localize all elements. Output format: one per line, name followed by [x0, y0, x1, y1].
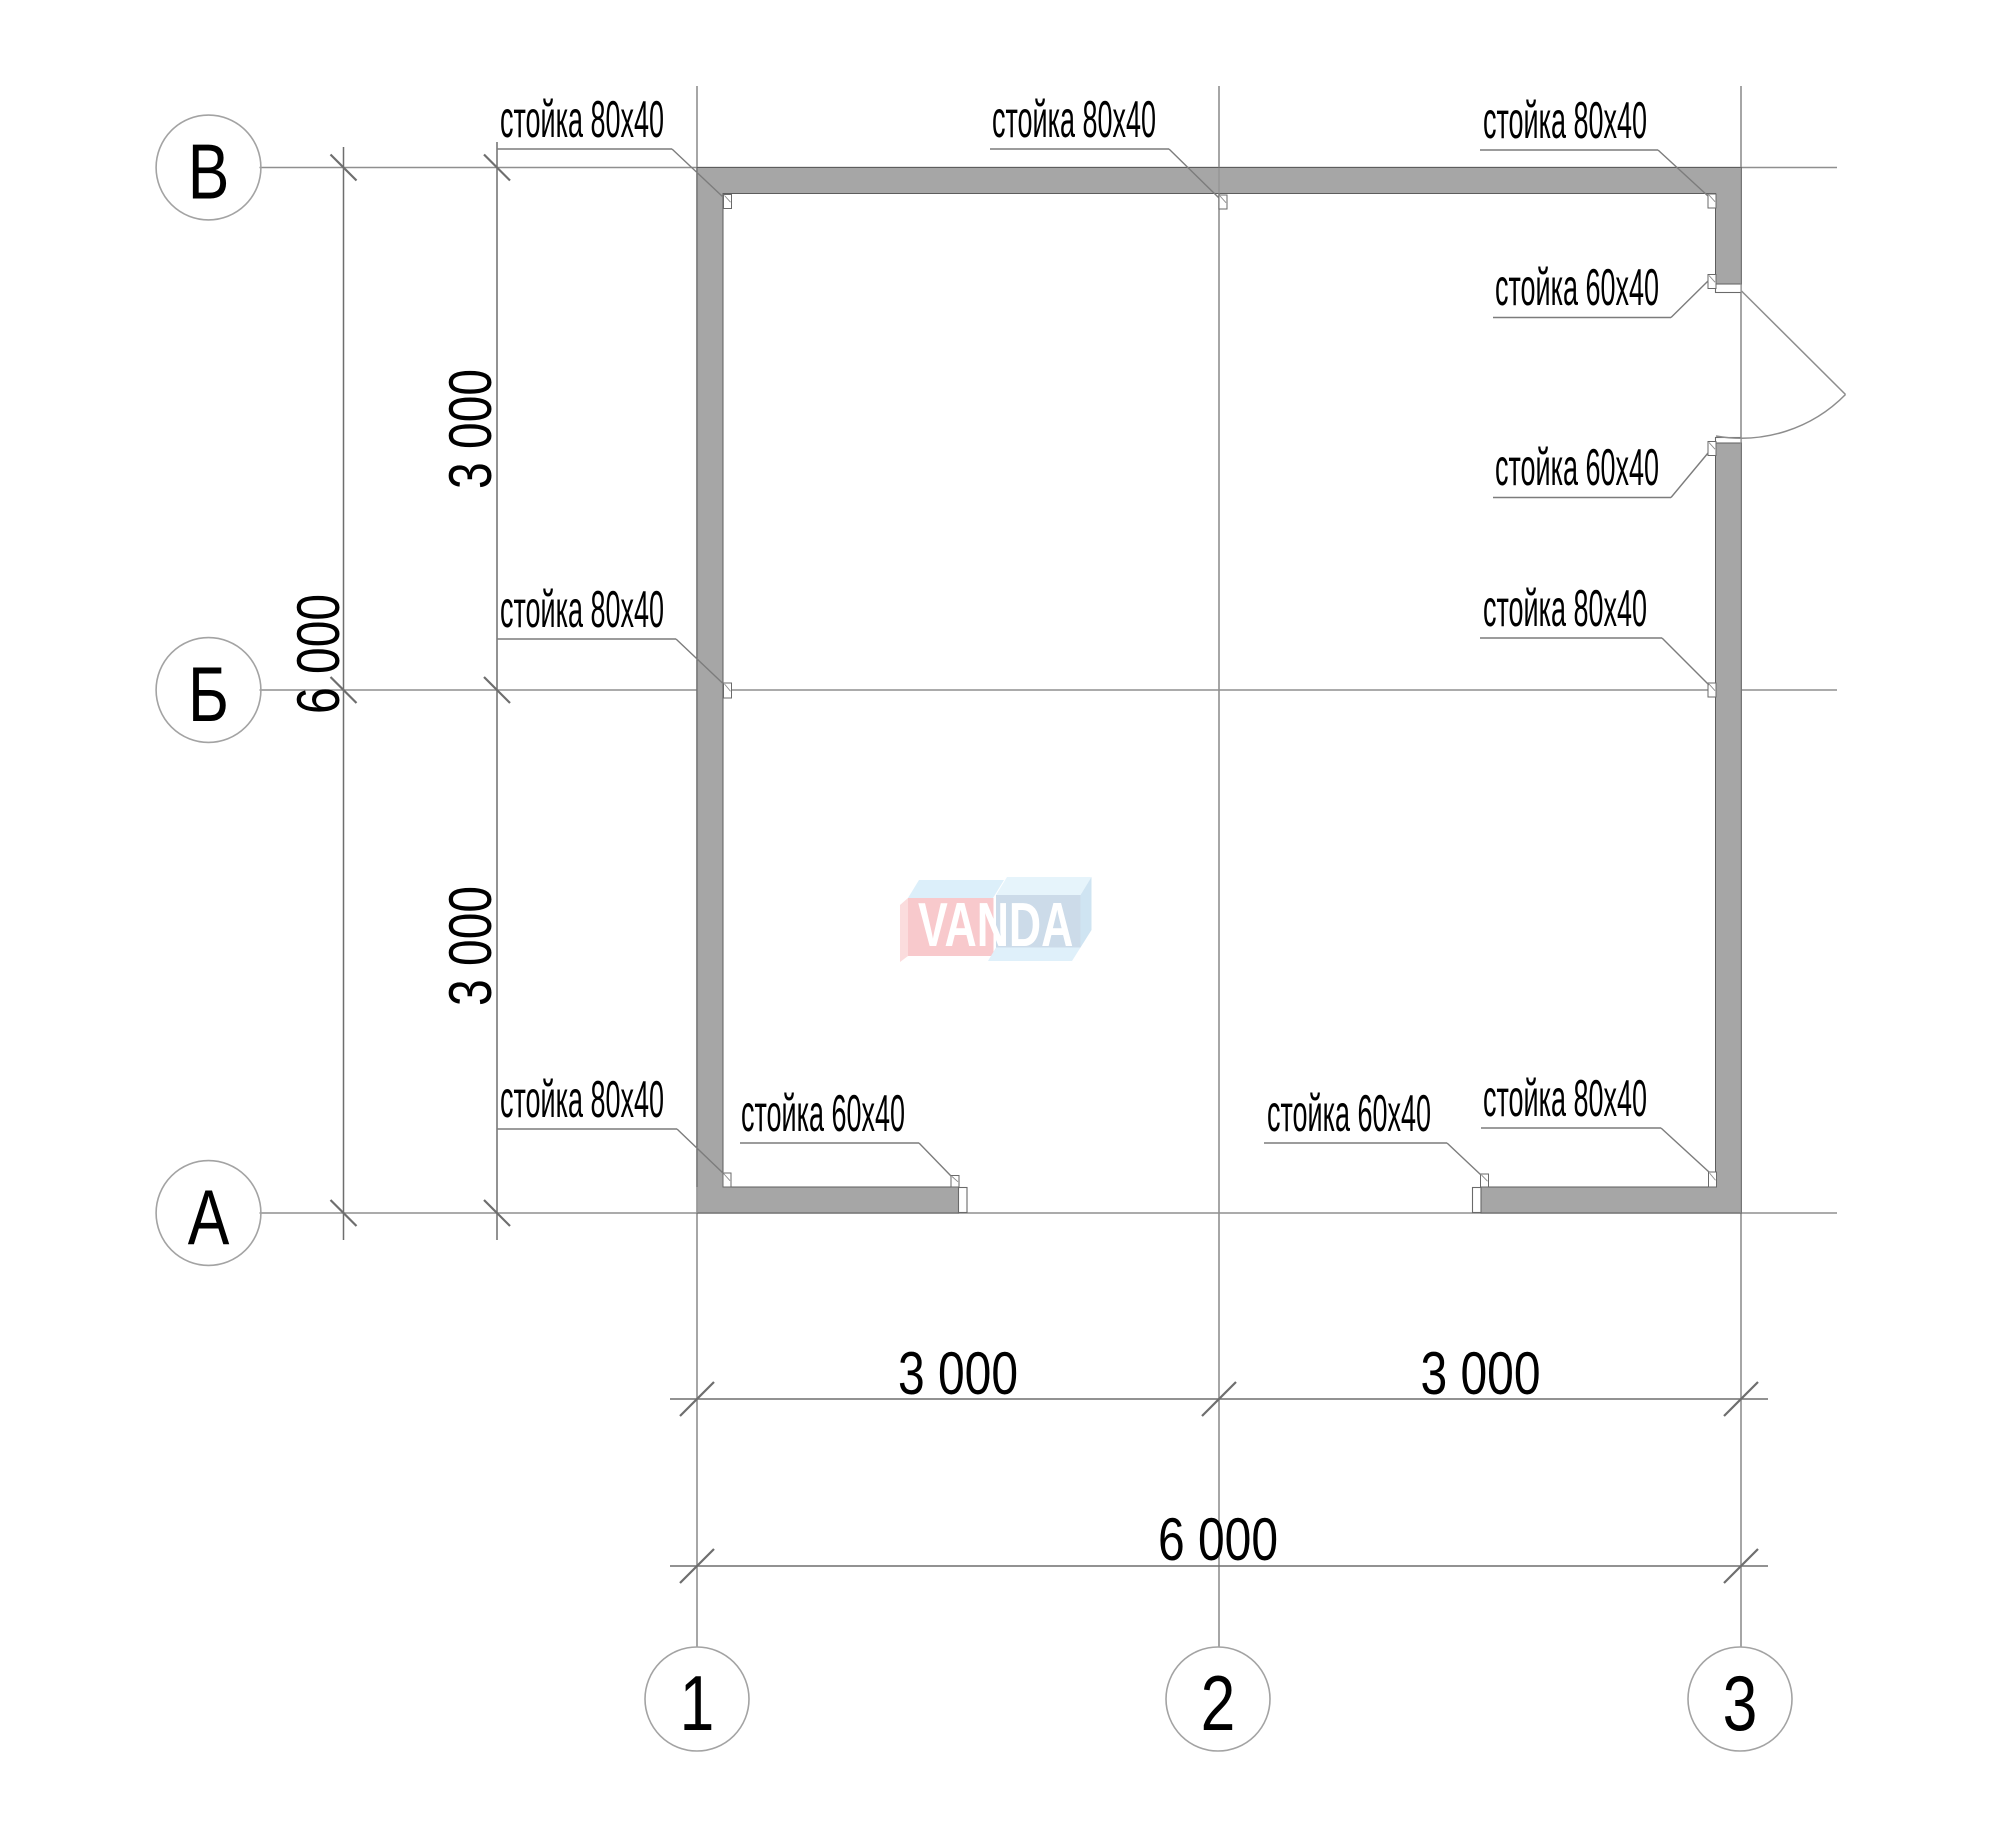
svg-text:стойка 80x40: стойка 80x40: [500, 1071, 664, 1129]
svg-text:стойка 80x40: стойка 80x40: [1483, 580, 1647, 638]
svg-text:6 000: 6 000: [1158, 1506, 1278, 1573]
svg-text:стойка 60x40: стойка 60x40: [1495, 259, 1659, 317]
svg-text:стойка 60x40: стойка 60x40: [1495, 439, 1659, 497]
svg-text:Б: Б: [188, 650, 229, 737]
svg-text:2: 2: [1201, 1659, 1236, 1746]
svg-text:стойка 80x40: стойка 80x40: [500, 581, 664, 639]
svg-text:3: 3: [1723, 1659, 1758, 1746]
svg-text:стойка 60x40: стойка 60x40: [1267, 1085, 1431, 1143]
svg-text:стойка 80x40: стойка 80x40: [500, 91, 664, 149]
svg-text:стойка 60x40: стойка 60x40: [741, 1085, 905, 1143]
svg-text:3 000: 3 000: [437, 369, 504, 489]
svg-text:стойка 80x40: стойка 80x40: [992, 91, 1156, 149]
svg-text:3 000: 3 000: [1420, 1340, 1540, 1407]
svg-text:3 000: 3 000: [437, 886, 504, 1006]
svg-text:В: В: [188, 128, 230, 215]
svg-text:6 000: 6 000: [285, 594, 352, 714]
svg-text:А: А: [188, 1173, 230, 1260]
svg-text:3 000: 3 000: [898, 1340, 1018, 1407]
svg-text:1: 1: [680, 1659, 715, 1746]
svg-text:VANDA: VANDA: [918, 891, 1073, 960]
svg-text:стойка 80x40: стойка 80x40: [1483, 1070, 1647, 1128]
svg-text:стойка 80x40: стойка 80x40: [1483, 92, 1647, 150]
